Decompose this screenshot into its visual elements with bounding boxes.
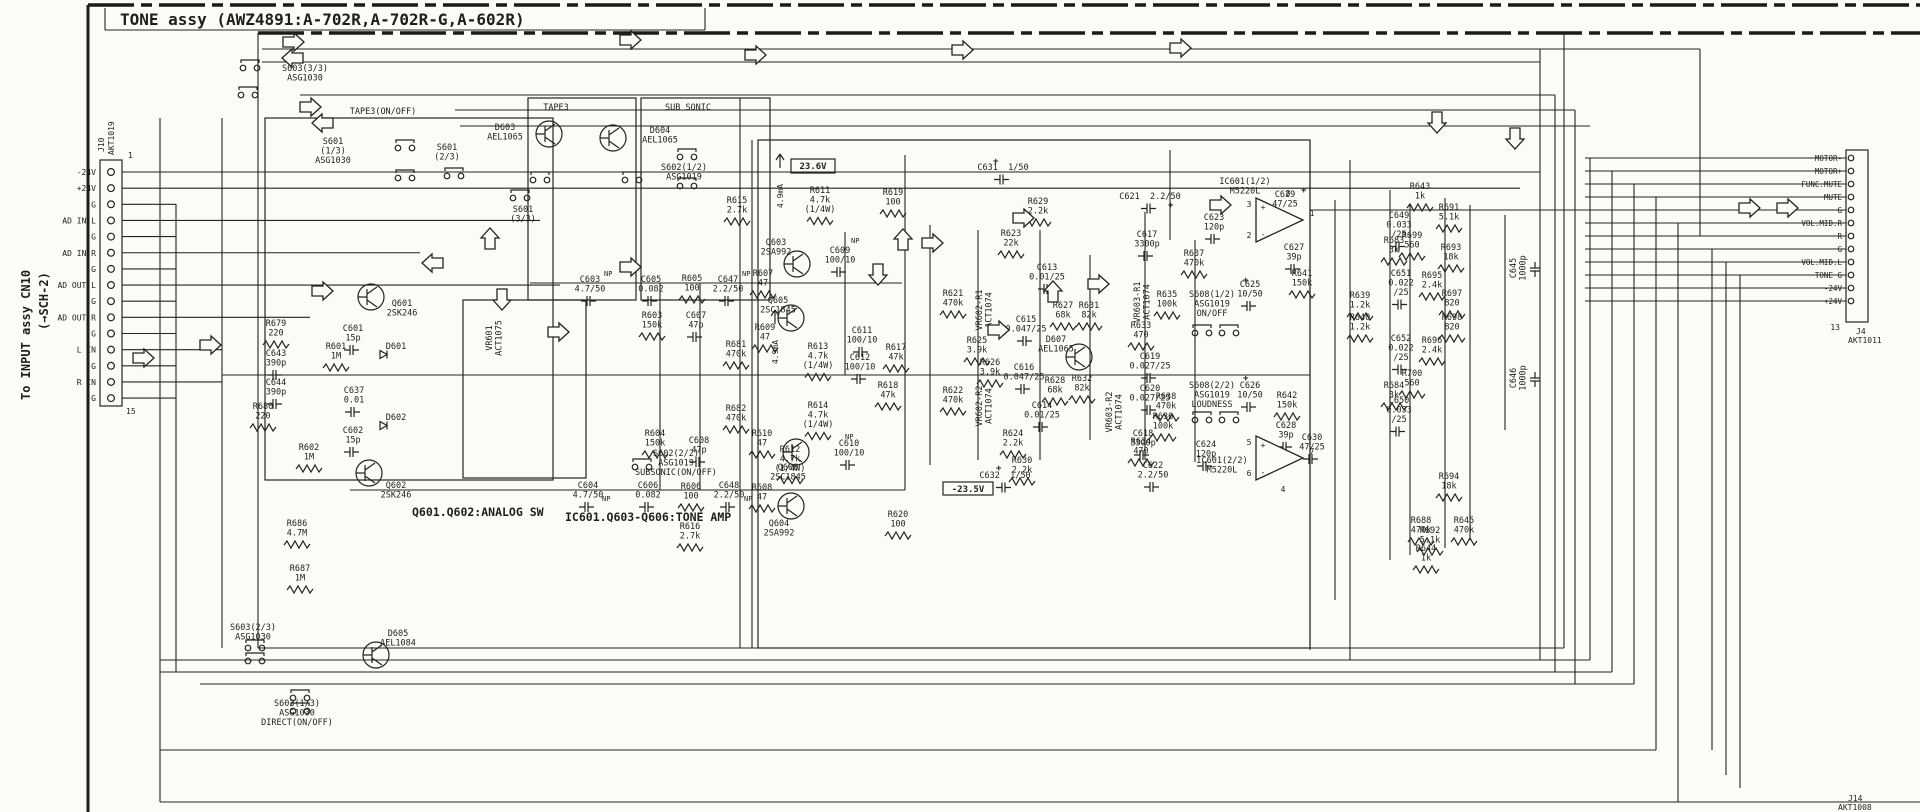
transistor-symbol: [363, 642, 389, 668]
component-r642: R642150k: [1274, 391, 1300, 420]
switch-symbol: [245, 653, 265, 664]
component-label: 820: [1444, 323, 1459, 333]
np-mark: NP: [744, 495, 752, 503]
polarity-plus-mark: +: [993, 157, 999, 167]
component-q604: Q6042SA992: [764, 519, 795, 539]
signal-flow-arrow: [133, 349, 154, 367]
switch-symbol: [444, 168, 464, 179]
component-label: 100: [885, 198, 900, 208]
component-label: R626: [980, 358, 1000, 368]
signal-flow-arrow: [422, 254, 443, 272]
component-label: 470k: [943, 396, 963, 406]
component-label: D604: [650, 126, 670, 136]
component-label: C650: [1389, 396, 1409, 406]
component-label: 4.7/50: [575, 285, 606, 295]
section-label: IC601.Q603-Q606:TONE AMP: [565, 510, 731, 524]
component-label: R637: [1184, 249, 1204, 259]
component-label: C651: [1391, 269, 1411, 279]
component-label: C637: [344, 386, 364, 396]
signal-flow-arrow: [620, 258, 641, 276]
component-vr603-r2: VR603-R2ACT1074: [1105, 392, 1125, 433]
component-label: R692: [1420, 526, 1440, 536]
component-d607: D607AEL1065: [1038, 335, 1074, 355]
component-label: Q605: [768, 296, 788, 306]
component-r610: R61047: [749, 429, 775, 458]
right-connector: 13 J4 AKT1011: [1830, 323, 1882, 345]
component-label: R603: [642, 311, 662, 321]
component-label: 4.7M: [287, 529, 307, 539]
component-label: C612: [850, 353, 870, 363]
component-label: TAPE3: [543, 103, 569, 113]
component-c637: C6370.01: [344, 386, 364, 417]
component-label: ASG1019: [1194, 300, 1230, 310]
component-c623: C623120p: [1204, 213, 1224, 244]
right-connector-pin: [1848, 233, 1854, 239]
left-connector-pin: [108, 346, 115, 353]
component-label: 1M: [304, 453, 314, 463]
component-r696: R6962.4k: [1419, 336, 1445, 365]
switch-symbol: [510, 190, 530, 201]
component-label: (1/4W): [805, 205, 836, 215]
component-label: 2.2k: [1003, 439, 1023, 449]
right-connector-pin: [1848, 220, 1854, 226]
component-label: ON/OFF: [1197, 309, 1228, 319]
component-label: C646: [1509, 368, 1519, 388]
component-label: R700: [1402, 369, 1422, 379]
component-label: 18k: [1441, 482, 1456, 492]
component-label: 4.7k: [808, 352, 828, 362]
component-label: C609: [830, 246, 850, 256]
component-label: AEL1065: [642, 136, 678, 146]
signal-flow-arrow: [1777, 199, 1798, 217]
component-label: C616: [1014, 363, 1034, 373]
component-label: Q601: [392, 299, 412, 309]
component-c604: C6044.7/50: [573, 481, 604, 512]
component-label: 39p: [1278, 431, 1293, 441]
component-label: 68k: [1055, 311, 1070, 321]
component-r619: R619100: [880, 188, 906, 217]
component-c606: C6060.082: [635, 481, 661, 512]
right-pin-label: VOL.MID.R: [1801, 219, 1842, 228]
component-label: C631 1/50: [977, 163, 1028, 173]
right-connector-pin: [1848, 272, 1854, 278]
right-connector-pin: [1848, 298, 1854, 304]
component-label: 3300p: [1134, 240, 1160, 250]
signal-flow-arrow: [312, 114, 333, 132]
component-label: 820: [1444, 299, 1459, 309]
right-connector-pin: [1848, 155, 1854, 161]
component-label: S601: [323, 137, 343, 147]
component-r686: R6864.7M: [284, 519, 310, 548]
component-label: R622: [943, 386, 963, 396]
component-label: R609: [755, 323, 775, 333]
component-label: R641: [1292, 269, 1312, 279]
opamp-pin-label: 1: [1310, 209, 1315, 218]
component-c619: C6190.027/25: [1130, 352, 1171, 383]
svg-text:4.9mA: 4.9mA: [776, 184, 785, 208]
component-label: 15p: [345, 436, 360, 446]
component-label: C608: [689, 436, 709, 446]
component-label: LOUDNESS: [1192, 400, 1233, 410]
component-label: S601: [437, 143, 457, 153]
component-label: S603(2/3): [230, 623, 276, 633]
component-label: D603: [495, 123, 515, 133]
component-q601: Q6012SK246: [387, 299, 418, 319]
component-label: 150k: [1292, 279, 1312, 289]
component-label: R621: [943, 289, 963, 299]
component-label: 120p: [1204, 223, 1224, 233]
component-label: 100: [890, 520, 905, 530]
component-label: 470: [1133, 331, 1148, 341]
component-s601: S601(2/3): [434, 143, 460, 163]
polarity-plus-mark: +: [1243, 374, 1249, 384]
right-pin-label: TONE G: [1815, 271, 1843, 280]
left-pin-label: AD IN R: [62, 249, 96, 258]
component-label: 1000p: [1519, 255, 1529, 281]
np-mark: NP: [851, 237, 859, 245]
component-label: C644: [266, 378, 286, 388]
left-pin-label: AD OUT L: [57, 281, 96, 290]
component-label: 3.9k: [967, 346, 987, 356]
component-sub: SUB SONIC: [665, 103, 711, 113]
switch-symbol: [395, 140, 415, 151]
component-label: R624: [1003, 429, 1023, 439]
signal-flow-arrow: [481, 228, 499, 249]
left-pin-label: L IN: [77, 346, 96, 355]
component-d604: D604AEL1065: [642, 126, 678, 146]
component-vr602-r1: VR602-R1ACT1074: [975, 290, 995, 331]
component-label: C603: [580, 275, 600, 285]
component-r681: R681470k: [723, 340, 749, 369]
component-label: VR603-R1: [1133, 282, 1143, 323]
component-label: 2SK246: [387, 309, 418, 319]
component-s608: S608(2/2)ASG1019LOUDNESS: [1189, 381, 1235, 410]
component-label: 0.033: [1386, 221, 1412, 231]
component-label: R688: [1411, 516, 1431, 526]
component-label: R615: [727, 196, 747, 206]
svg-text:IC601(1/2): IC601(1/2): [1219, 177, 1270, 187]
component-label: S608(2/2): [1189, 381, 1235, 391]
left-connector-pin: [108, 266, 115, 273]
opamp-pin-label: 8: [1286, 189, 1291, 198]
component-label: R606: [681, 482, 701, 492]
component-label: 150k: [1277, 401, 1297, 411]
component-tape3: TAPE3(ON/OFF): [350, 107, 417, 117]
component-label: R633: [1131, 321, 1151, 331]
component-label: ACT1074: [1115, 394, 1125, 430]
component-label: C605: [641, 275, 661, 285]
component-label: 2.2/50: [1138, 471, 1169, 481]
right-pin-label: MOTOR+: [1815, 167, 1843, 176]
left-connector-pin: [108, 362, 115, 369]
component-label: R602: [299, 443, 319, 453]
component-label: R686: [287, 519, 307, 529]
polarity-plus-mark: +: [1243, 276, 1249, 286]
component-label: C627: [1284, 243, 1304, 253]
component-label: Q604: [769, 519, 789, 529]
component-label: 390p: [266, 388, 286, 398]
component-label: ACT1074: [1143, 284, 1153, 320]
left-pin-label: AD IN L: [62, 216, 96, 225]
opamp-pin-label: 7: [1310, 447, 1315, 456]
component-r626: R6263.9k: [977, 358, 1003, 387]
component-label: R645: [1454, 516, 1474, 526]
component-label: 68k: [1047, 386, 1062, 396]
component-label: C643: [266, 349, 286, 359]
signal-flow-arrow: [1088, 275, 1109, 293]
schematic-page: TONE assy (AWZ4891:A-702R,A-702R-G,A-602…: [0, 0, 1920, 812]
component-r614: R6144.7k(1/4W): [803, 401, 834, 440]
right-pin-label: -24V: [1824, 284, 1843, 293]
component-r611: R6114.7k(1/4W): [805, 186, 836, 225]
transistor-symbol: [1066, 344, 1092, 370]
component-label: 47p: [688, 321, 703, 331]
component-label: 0.047/25: [1006, 325, 1047, 335]
component-label: 0.027/25: [1130, 362, 1171, 372]
component-label: 470k: [726, 350, 746, 360]
component-label: R635: [1157, 290, 1177, 300]
component-r635: R635100k: [1154, 290, 1180, 319]
right-connector-pin: [1848, 285, 1854, 291]
signal-flow-arrow: [493, 289, 511, 310]
component-label: 1M: [295, 574, 305, 584]
component-label: R614: [808, 401, 828, 411]
left-connector-pin: [108, 169, 115, 176]
component-s601: S601(1/3)ASG1030: [315, 137, 351, 166]
component-tape3: TAPE3: [543, 103, 569, 113]
component-label: 2.7k: [680, 532, 700, 542]
voltage-callout: 23.6V: [799, 162, 827, 172]
component-label: ACT1074: [985, 388, 995, 424]
component-label: C632 1/50: [979, 471, 1030, 481]
switch-symbol: [240, 60, 260, 71]
component-label: C618: [1133, 429, 1153, 439]
component-label: 100/10: [834, 449, 865, 459]
component-c617: C6173300p: [1134, 230, 1160, 261]
component-label: 0.01/25: [1024, 411, 1060, 421]
component-label: 5.1k: [1420, 536, 1440, 546]
component-r687: R6871M: [287, 564, 313, 593]
opamp-pin-label: +: [1261, 441, 1266, 450]
transistor-symbol: [778, 493, 804, 519]
component-label: R613: [808, 342, 828, 352]
left-connector-pin: [108, 282, 115, 289]
component-r698: R698820: [1439, 313, 1465, 342]
component-label: R691: [1439, 203, 1459, 213]
left-pin-label: G: [91, 265, 96, 274]
component-label: 0.082: [638, 285, 664, 295]
svg-text:M5220L: M5220L: [1207, 466, 1238, 476]
component-label: ACT1074: [985, 292, 995, 328]
component-label: 2.4k: [1422, 281, 1442, 291]
polarity-plus-mark: +: [996, 464, 1002, 474]
component-d601: D601: [380, 342, 406, 359]
component-label: 100: [684, 284, 699, 294]
component-r633: R633470: [1128, 321, 1154, 350]
component-label: 47: [758, 279, 768, 289]
right-connector-pin: [1848, 168, 1854, 174]
component-r641: R641150k: [1289, 269, 1315, 298]
component-label: R697: [1442, 289, 1462, 299]
component-label: R681: [726, 340, 746, 350]
component-label: 220: [268, 329, 283, 339]
component-label: D602: [386, 413, 406, 423]
voltage-callout: -23.5V: [952, 485, 985, 495]
component-label: 560: [1404, 379, 1419, 389]
component-label: 100k: [1153, 422, 1173, 432]
component-r601: R6011M: [323, 342, 349, 371]
signal-flow-arrow: [1506, 128, 1524, 149]
component-label: (3/3): [510, 215, 536, 225]
corner-ref-part: AKT1008: [1838, 803, 1872, 812]
component-label: Q603: [766, 238, 786, 248]
component-s602: S602(1/2)ASG1019: [661, 163, 707, 183]
component-label: 0.033: [1386, 406, 1412, 416]
right-pin-label: VOL.MID.L: [1801, 258, 1842, 267]
component-label: 0.022: [1388, 344, 1414, 354]
component-c626: C62610/50: [1237, 381, 1263, 412]
svg-text:4.9mA: 4.9mA: [771, 340, 780, 364]
component-label: C647: [718, 275, 738, 285]
component-c610: C610100/10: [834, 439, 865, 470]
switch-symbol: [677, 149, 697, 160]
component-r608: R60847: [749, 483, 775, 512]
signal-flow-arrow: [1170, 39, 1191, 57]
component-label: 4.7k: [810, 196, 830, 206]
signal-flow-arrow: [894, 229, 912, 250]
component-c631: C631 1/50: [977, 163, 1028, 185]
component-label: 1.2k: [1350, 301, 1370, 311]
component-label: /25: [1393, 353, 1408, 363]
left-pin-label: G: [91, 297, 96, 306]
opamp-pin-label: 6: [1247, 469, 1252, 478]
component-label: C630: [1302, 433, 1322, 443]
component-s608: S608(1/2)ASG1019ON/OFF: [1189, 290, 1235, 319]
component-label: 5.1k: [1439, 213, 1459, 223]
component-label: C615: [1016, 315, 1036, 325]
component-label: R687: [290, 564, 310, 574]
component-c614: C6140.01/25: [1024, 401, 1060, 432]
component-label: 150k: [645, 439, 665, 449]
component-vr602-r2: VR602-R2ACT1074: [975, 386, 995, 427]
component-label: 470k: [943, 299, 963, 309]
component-c616: C6160.047/25: [1004, 363, 1045, 394]
component-label: C652: [1391, 334, 1411, 344]
component-label: 470k: [726, 414, 746, 424]
right-connector-pin-last: 13: [1830, 323, 1840, 332]
component-label: (1/3): [320, 147, 346, 157]
component-d602: D602: [380, 413, 406, 430]
component-label: VR602-R1: [975, 290, 985, 331]
left-connector-pin: [108, 185, 115, 192]
polarity-plus-mark: +: [1168, 201, 1174, 211]
component-c625: C62510/50: [1237, 280, 1263, 311]
opamp-pin-label: +: [1261, 203, 1266, 212]
component-r691: R6915.1k: [1436, 203, 1462, 232]
component-r623: R62322k: [998, 229, 1024, 258]
component-label: 100k: [1157, 300, 1177, 310]
section-label: Q601.Q602:ANALOG SW: [412, 505, 544, 519]
component-c644: C644390p: [266, 378, 286, 409]
component-label: R695: [1422, 271, 1442, 281]
component-label: 47: [757, 439, 767, 449]
component-label: R623: [1001, 229, 1021, 239]
component-label: (1/4W): [803, 361, 834, 371]
component-s603: S603(3/3)ASG1030: [282, 64, 328, 84]
signal-flow-arrow: [283, 33, 304, 51]
opamp-pin-label: 2: [1247, 231, 1252, 240]
component-label: C649: [1389, 211, 1409, 221]
signal-flow-arrow: [300, 98, 321, 116]
component-label: C622: [1143, 461, 1163, 471]
component-label: 2.7k: [727, 206, 747, 216]
left-connector-pin: [108, 298, 115, 305]
component-label: 3300p: [1130, 439, 1156, 449]
component-label: 0.01/25: [1029, 273, 1065, 283]
component-label: 47: [760, 333, 770, 343]
component-label: C601: [343, 324, 363, 334]
corner-ref: J14 AKT1008: [1838, 794, 1872, 812]
opamp-pin-label: 3: [1247, 200, 1252, 209]
component-r631: R63182k: [1076, 301, 1102, 330]
component-label: 10/50: [1237, 391, 1263, 401]
component-r622: R622470k: [940, 386, 966, 415]
component-c602: C60215p: [343, 426, 363, 457]
right-connector-pin: [1848, 207, 1854, 213]
signal-flow-arrow: [1428, 112, 1446, 133]
component-label: 390p: [266, 359, 286, 369]
switch-symbol: [1219, 412, 1239, 423]
component-label: R640: [1350, 313, 1370, 323]
left-connector-pin: [108, 233, 115, 240]
signal-flow-arrow: [1210, 196, 1231, 214]
component-label: R629: [1028, 197, 1048, 207]
polarity-plus-mark: +: [1301, 186, 1307, 196]
svg-text:M5220L: M5220L: [1230, 187, 1261, 197]
component-label: (2/3): [434, 153, 460, 163]
component-label: 0.082: [635, 491, 661, 501]
component-label: VR602-R2: [975, 386, 985, 427]
component-r618: R61847k: [875, 381, 901, 410]
right-pin-label: G: [1837, 206, 1842, 215]
component-label: 100: [683, 492, 698, 502]
component-label: 470k: [1454, 526, 1474, 536]
component-label: C628: [1276, 421, 1296, 431]
left-pin-label: G: [91, 362, 96, 371]
component-label: 82k: [1074, 384, 1089, 394]
component-label: VR601: [485, 325, 495, 351]
right-connector-pin: [1848, 246, 1854, 252]
component-label: R601: [326, 342, 346, 352]
left-connector-pin: [108, 314, 115, 321]
component-q603: Q6032SA992: [761, 238, 792, 258]
signal-flow-arrow: [1739, 199, 1760, 217]
opamp-pin-label: 5: [1247, 438, 1252, 447]
transistor-symbol: [536, 121, 562, 147]
component-s601: S601(3/3): [510, 205, 536, 225]
component-r620: R620100: [885, 510, 911, 539]
component-label: R610: [752, 429, 772, 439]
switch-symbol: [1219, 325, 1239, 336]
component-label: 150k: [642, 321, 662, 331]
right-pin-label: FUNC.MUTE: [1801, 180, 1842, 189]
component-label: 100/10: [825, 256, 856, 266]
right-connector-pin: [1848, 259, 1854, 265]
component-label: (1/4W): [803, 420, 834, 430]
component-label: C607: [686, 311, 706, 321]
left-pin-label: -24V: [77, 168, 96, 177]
component-label: 3.9k: [980, 368, 1000, 378]
